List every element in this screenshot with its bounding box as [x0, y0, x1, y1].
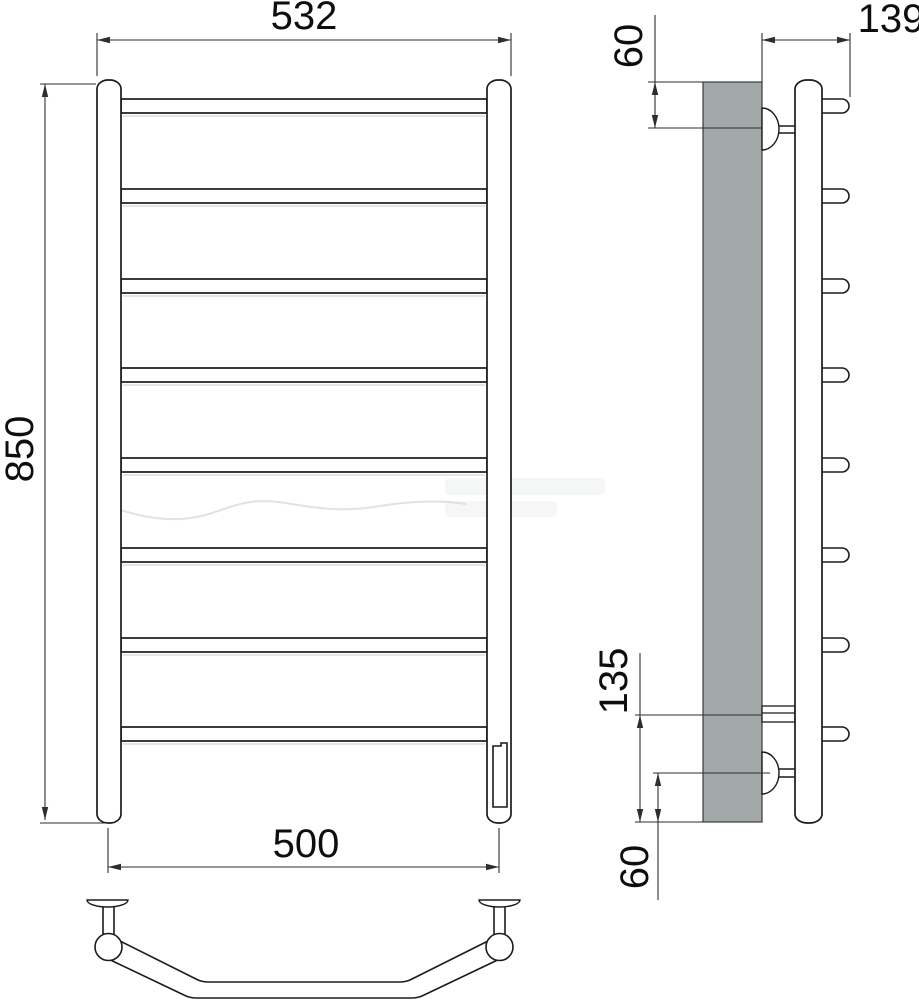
dim-label-overall-width: 532	[271, 0, 338, 36]
front-rungs	[121, 99, 487, 741]
rung-stub	[820, 99, 849, 113]
rung	[121, 727, 487, 741]
front-view	[97, 80, 511, 823]
rung	[121, 189, 487, 203]
dim-label-element-offset: 135	[594, 648, 634, 715]
rung	[121, 638, 487, 652]
watermark	[112, 478, 605, 519]
bottom-view	[87, 900, 520, 998]
rung	[121, 458, 487, 472]
rung-stub	[820, 368, 849, 382]
heating-element	[493, 743, 507, 807]
rung	[121, 99, 487, 113]
side-rung-stubs	[820, 99, 849, 741]
front-left-post	[97, 80, 121, 823]
rung-stub	[820, 279, 849, 293]
rung-stub	[820, 638, 849, 652]
side-post	[795, 80, 822, 823]
rung	[121, 368, 487, 382]
wall-section	[703, 82, 762, 822]
rung	[121, 279, 487, 293]
side-view	[703, 80, 849, 823]
wall-bracket-top	[762, 108, 796, 150]
front-right-post	[487, 80, 511, 823]
bottom-flange-right	[479, 900, 520, 907]
rung-stub	[820, 548, 849, 562]
technical-drawing-canvas: 532 139 850 60 135 60 500	[0, 0, 919, 1000]
rung	[121, 548, 487, 562]
dim-label-bottom-offset: 60	[615, 845, 655, 890]
rung-stub	[820, 458, 849, 472]
dim-label-mounting-width: 500	[273, 824, 340, 864]
drawing-linework	[0, 0, 919, 1000]
bottom-post-left	[87, 900, 128, 961]
bottom-post-right	[479, 900, 520, 961]
rung-stub	[820, 189, 849, 203]
bottom-flange-left	[87, 900, 128, 907]
dim-label-depth: 139	[858, 0, 919, 39]
bottom-rung-tube	[102, 941, 506, 998]
dim-532-lines	[97, 33, 511, 76]
rung-stub	[820, 727, 849, 741]
dim-label-overall-height: 850	[0, 416, 40, 483]
cable-fitting	[762, 706, 795, 722]
dim-label-top-offset: 60	[609, 24, 649, 69]
